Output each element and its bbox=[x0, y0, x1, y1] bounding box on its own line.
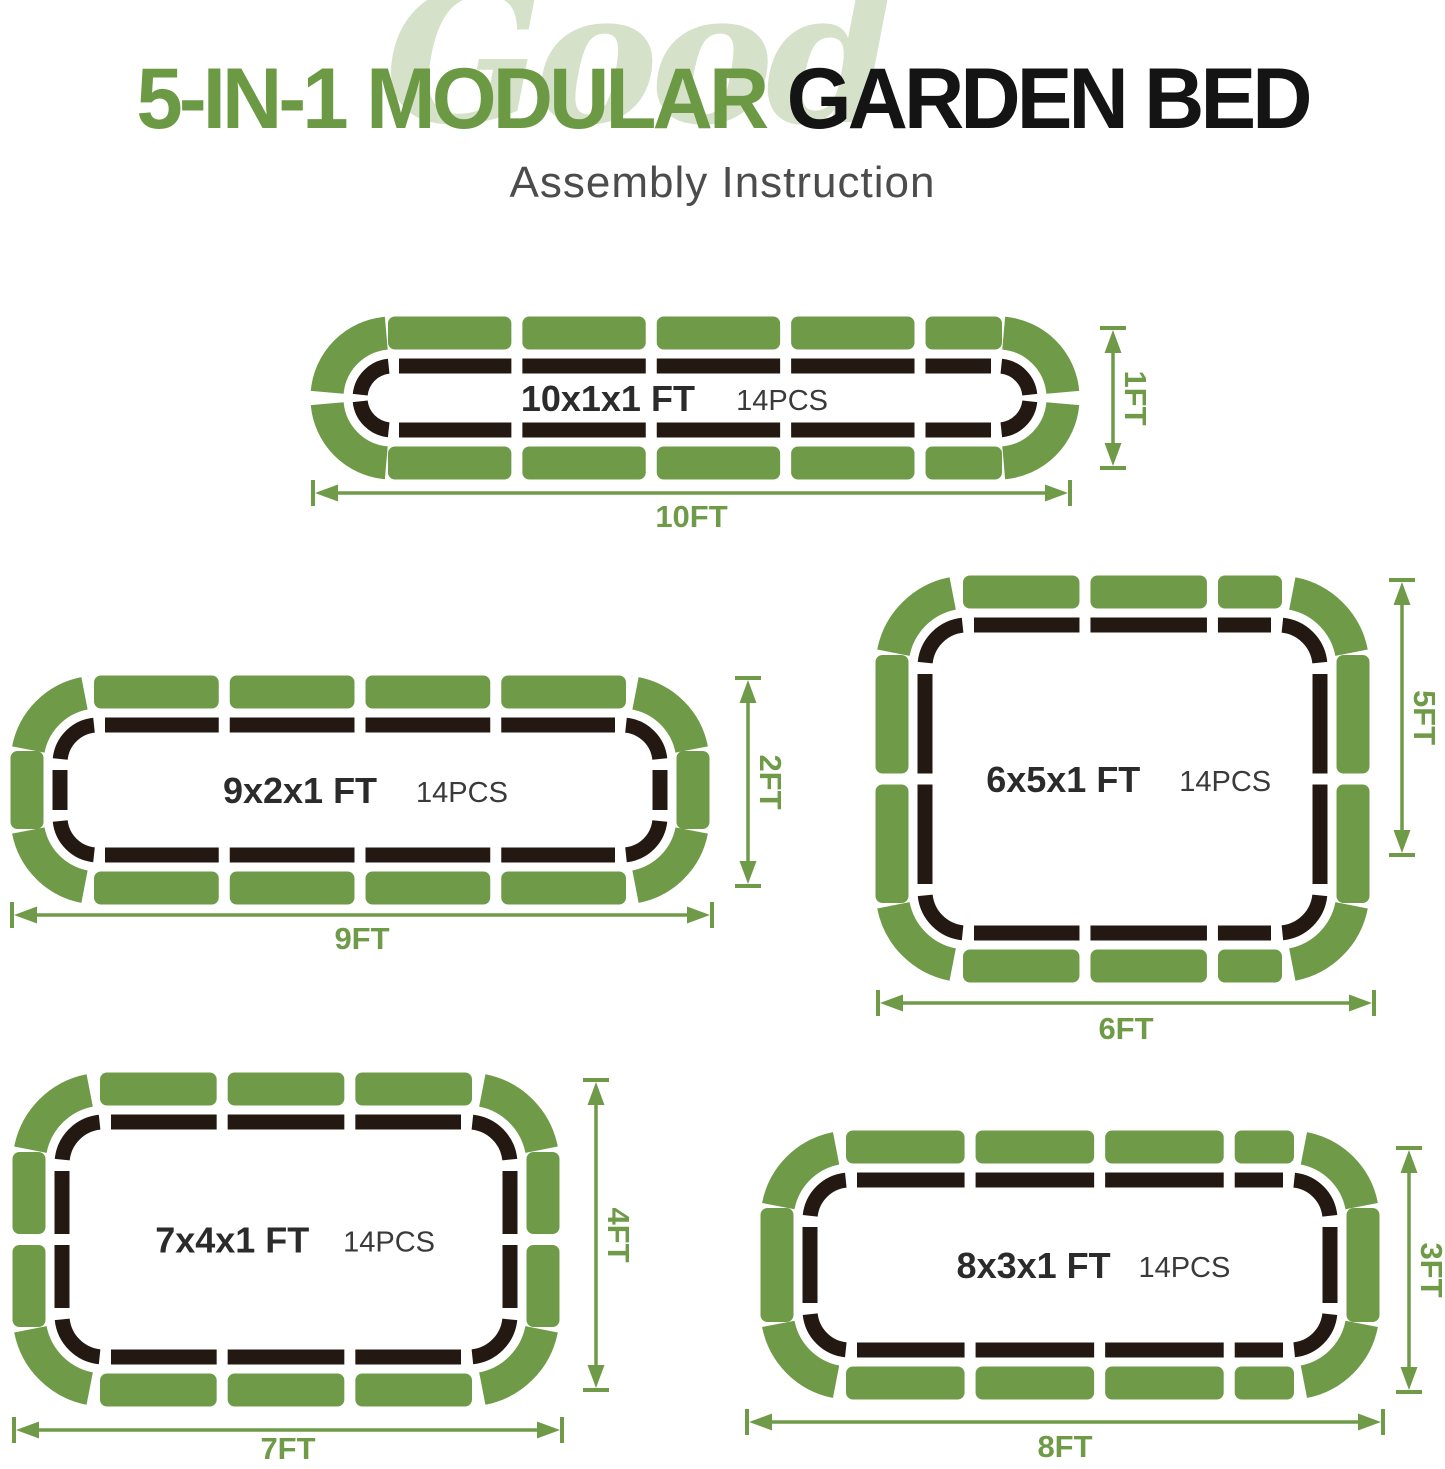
frame-corner bbox=[1282, 895, 1319, 932]
panel-top bbox=[926, 317, 1002, 350]
panel-left bbox=[876, 785, 909, 904]
corner-piece bbox=[30, 1329, 89, 1388]
frame-segment-bottom bbox=[228, 1350, 345, 1365]
panel-top bbox=[1090, 576, 1206, 609]
corner-piece bbox=[893, 593, 952, 652]
bed-diagram-9x2x1: 9x2x1 FT14PCS9FT2FT bbox=[0, 650, 800, 958]
frame-corner bbox=[1001, 366, 1030, 395]
bed-size-label: 8x3x1 FT bbox=[957, 1245, 1111, 1286]
width-arrow-cap-left bbox=[745, 1409, 749, 1435]
height-arrow-head-bottom bbox=[1394, 830, 1411, 853]
panel-right bbox=[527, 1245, 560, 1327]
panel-bottom bbox=[1218, 950, 1282, 983]
bed-diagram-10x1x1: 10x1x1 FT14PCS10FT1FT bbox=[295, 300, 1165, 534]
frame-segment-right bbox=[653, 770, 668, 810]
frame-corner bbox=[1294, 1180, 1330, 1216]
height-arrow-cap-top bbox=[735, 676, 761, 680]
bed-size-label: 7x4x1 FT bbox=[155, 1220, 309, 1261]
width-dimension-label: 6FT bbox=[1098, 1011, 1153, 1046]
frame-segment-bottom bbox=[1218, 926, 1271, 941]
panel-bottom bbox=[100, 1374, 217, 1407]
width-arrow-head-left bbox=[14, 907, 37, 924]
panel-bottom bbox=[522, 447, 645, 480]
height-arrow-cap-top bbox=[1389, 578, 1415, 582]
frame-segment-bottom bbox=[926, 423, 991, 438]
panel-top bbox=[976, 1131, 1095, 1164]
frame-segment-top bbox=[399, 359, 511, 374]
panel-bottom bbox=[355, 1374, 472, 1407]
panel-right bbox=[527, 1152, 560, 1234]
frame-segment-bottom bbox=[105, 848, 219, 863]
frame-segment-bottom bbox=[857, 1343, 965, 1358]
panel-left bbox=[13, 1152, 46, 1234]
width-arrow-cap-right bbox=[560, 1417, 564, 1443]
bed-size-label: 6x5x1 FT bbox=[986, 759, 1140, 800]
panel-top bbox=[657, 317, 780, 350]
panel-bottom bbox=[94, 872, 219, 905]
height-arrow-cap-bottom bbox=[1100, 466, 1126, 470]
panel-bottom bbox=[388, 447, 511, 480]
height-arrow-head-bottom bbox=[1401, 1367, 1418, 1390]
frame-segment-left bbox=[918, 674, 933, 774]
panel-bottom bbox=[1105, 1367, 1224, 1400]
frame-corner bbox=[360, 401, 389, 430]
frame-corner bbox=[60, 725, 94, 759]
height-arrow-head-top bbox=[1401, 1150, 1418, 1173]
frame-corner bbox=[472, 1122, 509, 1159]
frame-corner bbox=[626, 725, 660, 759]
panel-bottom bbox=[926, 447, 1002, 480]
frame-segment-top bbox=[230, 718, 355, 733]
corner-piece bbox=[1292, 593, 1351, 652]
frame-segment-top bbox=[1218, 618, 1271, 633]
frame-segment-top bbox=[857, 1173, 965, 1188]
bed-pcs-label: 14PCS bbox=[416, 777, 508, 809]
frame-corner bbox=[810, 1180, 846, 1216]
panel-top bbox=[522, 317, 645, 350]
panel-top bbox=[1218, 576, 1282, 609]
frame-corner bbox=[810, 1314, 846, 1350]
panel-top bbox=[791, 317, 914, 350]
width-arrow-head-left bbox=[880, 995, 903, 1012]
height-arrow-cap-top bbox=[583, 1078, 609, 1082]
frame-corner bbox=[60, 821, 94, 855]
width-arrow-cap-right bbox=[1068, 480, 1072, 506]
frame-segment-top bbox=[366, 718, 491, 733]
title-part-garden-bed: GARDEN BED bbox=[787, 51, 1309, 147]
width-dimension-label: 9FT bbox=[334, 921, 389, 956]
panel-top bbox=[963, 576, 1079, 609]
frame-segment-top bbox=[522, 359, 645, 374]
frame-segment-bottom bbox=[522, 423, 645, 438]
panel-top bbox=[1105, 1131, 1224, 1164]
frame-segment-top bbox=[228, 1115, 345, 1130]
frame-segment-bottom bbox=[501, 848, 615, 863]
width-arrow-cap-left bbox=[311, 480, 315, 506]
height-arrow-head-bottom bbox=[588, 1365, 605, 1388]
corner-piece bbox=[1304, 1148, 1362, 1206]
height-arrow-head-top bbox=[1105, 330, 1122, 353]
page-title: 5-IN-1MODULARGARDEN BED bbox=[22, 0, 1424, 142]
corner-piece bbox=[482, 1090, 541, 1149]
width-arrow-head-left bbox=[16, 1422, 39, 1439]
frame-segment-top bbox=[355, 1115, 461, 1130]
frame-segment-bottom bbox=[355, 1350, 461, 1365]
frame-segment-top bbox=[791, 359, 914, 374]
panel-right bbox=[1337, 655, 1370, 774]
frame-segment-top bbox=[974, 618, 1079, 633]
bed-diagram-7x4x1: 7x4x1 FT14PCS7FT4FT bbox=[0, 1050, 650, 1467]
frame-segment-top bbox=[657, 359, 780, 374]
frame-segment-left bbox=[55, 1171, 70, 1234]
panel-top bbox=[846, 1131, 965, 1164]
frame-segment-top bbox=[976, 1173, 1095, 1188]
corner-piece bbox=[1292, 905, 1351, 964]
frame-segment-bottom bbox=[366, 848, 491, 863]
corner-piece bbox=[482, 1329, 541, 1388]
title-block: Good 5-IN-1MODULARGARDEN BED Assembly In… bbox=[0, 0, 1445, 208]
height-arrow-head-bottom bbox=[1105, 443, 1122, 466]
width-arrow-head-left bbox=[749, 1414, 772, 1431]
frame-corner bbox=[62, 1122, 99, 1159]
frame-segment-bottom bbox=[399, 423, 511, 438]
frame-corner bbox=[472, 1319, 509, 1356]
assembly-instruction-page: Good 5-IN-1MODULARGARDEN BED Assembly In… bbox=[0, 0, 1445, 1469]
height-arrow-cap-bottom bbox=[583, 1388, 609, 1392]
width-arrow-head-right bbox=[1349, 995, 1372, 1012]
panel-bottom bbox=[366, 872, 491, 905]
panel-bottom bbox=[1235, 1367, 1294, 1400]
panel-right bbox=[1347, 1208, 1380, 1322]
bed-pcs-label: 14PCS bbox=[1179, 766, 1271, 798]
frame-segment-top bbox=[501, 718, 615, 733]
height-dimension-label: 1FT bbox=[1118, 370, 1153, 425]
corner-piece bbox=[893, 905, 952, 964]
frame-corner bbox=[1282, 625, 1319, 662]
frame-segment-top bbox=[111, 1115, 217, 1130]
panel-right bbox=[1337, 785, 1370, 904]
frame-segment-left bbox=[53, 770, 68, 810]
frame-segment-top bbox=[1105, 1173, 1224, 1188]
panel-left bbox=[13, 1245, 46, 1327]
panel-top bbox=[388, 317, 511, 350]
frame-corner bbox=[360, 366, 389, 395]
frame-segment-right bbox=[503, 1171, 518, 1234]
height-dimension-label: 5FT bbox=[1407, 690, 1442, 745]
panel-bottom bbox=[976, 1367, 1095, 1400]
frame-segment-top bbox=[1235, 1173, 1283, 1188]
width-dimension-label: 8FT bbox=[1037, 1429, 1092, 1464]
frame-segment-right bbox=[1313, 674, 1328, 774]
height-arrow-head-bottom bbox=[740, 861, 757, 884]
bed-diagram-6x5x1: 6x5x1 FT14PCS6FT5FT bbox=[850, 555, 1445, 1052]
frame-segment-bottom bbox=[974, 926, 1079, 941]
corner-piece bbox=[30, 1090, 89, 1149]
width-arrow-head-right bbox=[1045, 485, 1068, 502]
corner-piece bbox=[778, 1324, 836, 1382]
height-dimension-label: 3FT bbox=[1414, 1242, 1445, 1297]
height-dimension-label: 4FT bbox=[601, 1207, 636, 1262]
panel-top bbox=[366, 676, 491, 709]
panel-bottom bbox=[846, 1367, 965, 1400]
bed-diagram-8x3x1: 8x3x1 FT14PCS8FT3FT bbox=[725, 1090, 1445, 1467]
frame-segment-left bbox=[55, 1245, 70, 1308]
height-arrow-cap-top bbox=[1396, 1146, 1422, 1150]
panel-top bbox=[94, 676, 219, 709]
panel-left bbox=[761, 1208, 794, 1322]
frame-segment-bottom bbox=[657, 423, 780, 438]
width-arrow-head-right bbox=[1358, 1414, 1381, 1431]
panel-top bbox=[355, 1073, 472, 1106]
panel-bottom bbox=[230, 872, 355, 905]
title-part-modular: MODULAR bbox=[366, 51, 765, 147]
frame-corner bbox=[62, 1319, 99, 1356]
height-arrow-head-top bbox=[1394, 582, 1411, 605]
width-arrow-cap-right bbox=[1381, 1409, 1385, 1435]
frame-segment-right bbox=[503, 1245, 518, 1308]
width-arrow-head-right bbox=[537, 1422, 560, 1439]
width-arrow-cap-right bbox=[710, 902, 714, 928]
title-part-5in1: 5-IN-1 bbox=[136, 51, 344, 147]
panel-bottom bbox=[228, 1374, 345, 1407]
frame-corner bbox=[925, 895, 962, 932]
frame-segment-bottom bbox=[111, 1350, 217, 1365]
panel-bottom bbox=[657, 447, 780, 480]
frame-corner bbox=[925, 625, 962, 662]
panel-top bbox=[1235, 1131, 1294, 1164]
height-arrow-cap-bottom bbox=[1396, 1390, 1422, 1394]
width-dimension-label: 10FT bbox=[655, 499, 727, 534]
width-arrow-cap-left bbox=[876, 990, 880, 1016]
frame-segment-bottom bbox=[230, 848, 355, 863]
subtitle: Assembly Instruction bbox=[0, 158, 1445, 208]
height-arrow-cap-bottom bbox=[1389, 853, 1415, 857]
panel-top bbox=[501, 676, 626, 709]
width-arrow-cap-left bbox=[12, 1417, 16, 1443]
bed-pcs-label: 14PCS bbox=[343, 1227, 435, 1259]
panel-left bbox=[11, 751, 44, 829]
height-arrow-head-top bbox=[588, 1082, 605, 1105]
panel-bottom bbox=[963, 950, 1079, 983]
width-dimension-label: 7FT bbox=[260, 1431, 315, 1466]
panel-right bbox=[677, 751, 710, 829]
frame-segment-bottom bbox=[791, 423, 914, 438]
panel-bottom bbox=[501, 872, 626, 905]
frame-segment-bottom bbox=[976, 1343, 1095, 1358]
frame-corner bbox=[1001, 401, 1030, 430]
panel-top bbox=[230, 676, 355, 709]
frame-segment-bottom bbox=[1090, 926, 1206, 941]
panel-bottom bbox=[1090, 950, 1206, 983]
frame-segment-top bbox=[105, 718, 219, 733]
height-arrow-cap-top bbox=[1100, 326, 1126, 330]
height-arrow-head-top bbox=[740, 680, 757, 703]
height-dimension-label: 2FT bbox=[753, 754, 788, 809]
frame-segment-right bbox=[1323, 1227, 1338, 1303]
height-arrow-cap-bottom bbox=[735, 884, 761, 888]
frame-segment-right bbox=[1313, 785, 1328, 885]
width-arrow-head-left bbox=[315, 485, 338, 502]
bed-pcs-label: 14PCS bbox=[1138, 1252, 1230, 1284]
corner-piece bbox=[1304, 1324, 1362, 1382]
frame-segment-bottom bbox=[1235, 1343, 1283, 1358]
frame-segment-top bbox=[1090, 618, 1206, 633]
panel-top bbox=[100, 1073, 217, 1106]
bed-pcs-label: 14PCS bbox=[736, 385, 828, 417]
bed-size-label: 10x1x1 FT bbox=[521, 378, 695, 419]
frame-corner bbox=[1294, 1314, 1330, 1350]
width-arrow-cap-left bbox=[10, 902, 14, 928]
bed-size-label: 9x2x1 FT bbox=[223, 770, 377, 811]
frame-segment-left bbox=[918, 785, 933, 885]
width-arrow-cap-right bbox=[1372, 990, 1376, 1016]
frame-segment-bottom bbox=[1105, 1343, 1224, 1358]
panel-left bbox=[876, 655, 909, 774]
width-arrow-head-right bbox=[687, 907, 710, 924]
frame-segment-left bbox=[803, 1227, 818, 1303]
panel-bottom bbox=[791, 447, 914, 480]
frame-corner bbox=[626, 821, 660, 855]
panel-top bbox=[228, 1073, 345, 1106]
frame-segment-top bbox=[926, 359, 991, 374]
corner-piece bbox=[778, 1148, 836, 1206]
